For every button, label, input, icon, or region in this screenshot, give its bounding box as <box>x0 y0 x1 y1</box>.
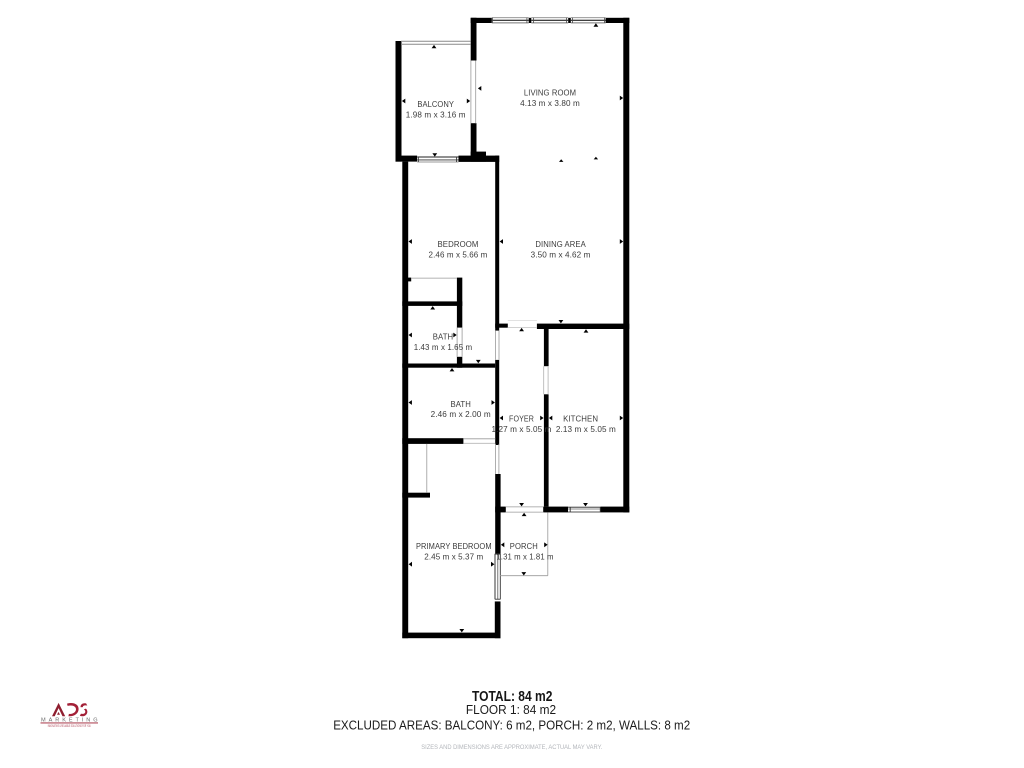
svg-text:2.46 m x 2.00 m: 2.46 m x 2.00 m <box>431 409 491 419</box>
svg-text:DINING AREA: DINING AREA <box>535 239 586 249</box>
svg-text:SIZES AND DIMENSIONS ARE APPRO: SIZES AND DIMENSIONS ARE APPROXIMATE, AC… <box>421 744 602 751</box>
svg-text:MARKETING: MARKETING <box>41 717 98 723</box>
svg-text:BALCONY: BALCONY <box>417 99 454 109</box>
svg-text:3.50 m x 4.62 m: 3.50 m x 4.62 m <box>531 249 591 259</box>
svg-text:INNOVATIVE & RELIABLE SOLUTION: INNOVATIVE & RELIABLE SOLUTIONS FOR YOU <box>48 724 91 728</box>
svg-text:FOYER: FOYER <box>509 413 534 423</box>
svg-text:BEDROOM: BEDROOM <box>438 239 479 249</box>
svg-text:1.27 m x 5.05 m: 1.27 m x 5.05 m <box>492 424 552 434</box>
svg-text:2.45 m x 5.37 m: 2.45 m x 5.37 m <box>424 551 483 561</box>
svg-text:2.13 m x 5.05 m: 2.13 m x 5.05 m <box>556 424 616 434</box>
svg-text:1.98 m x 3.16 m: 1.98 m x 3.16 m <box>406 109 466 119</box>
svg-text:BATH: BATH <box>450 399 471 409</box>
svg-text:KITCHEN: KITCHEN <box>563 413 598 423</box>
svg-text:FLOOR 1: 84 m2: FLOOR 1: 84 m2 <box>466 703 556 717</box>
svg-text:1.31 m x 1.81 m: 1.31 m x 1.81 m <box>496 551 553 561</box>
svg-text:LIVING ROOM: LIVING ROOM <box>524 88 576 98</box>
svg-text:4.13 m x 3.80 m: 4.13 m x 3.80 m <box>520 98 580 108</box>
svg-text:BATH: BATH <box>433 332 454 342</box>
svg-text:2.46 m x 5.66 m: 2.46 m x 5.66 m <box>429 249 488 259</box>
svg-text:1.43 m x 1.65 m: 1.43 m x 1.65 m <box>414 342 473 352</box>
svg-text:EXCLUDED AREAS: BALCONY: 6 m2,: EXCLUDED AREAS: BALCONY: 6 m2, PORCH: 2 … <box>333 718 690 732</box>
svg-text:PRIMARY BEDROOM: PRIMARY BEDROOM <box>416 541 492 551</box>
svg-text:PORCH: PORCH <box>510 541 538 551</box>
